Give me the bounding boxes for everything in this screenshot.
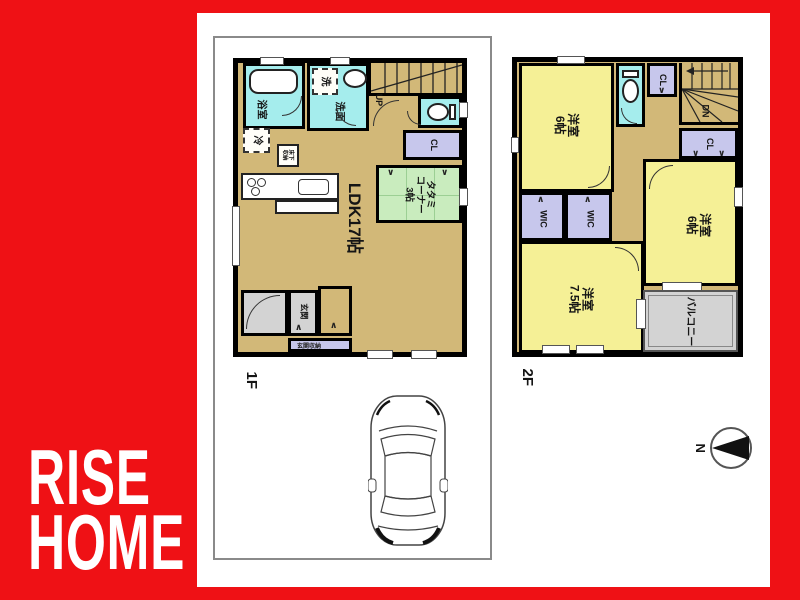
window [542,345,570,354]
underfloor-storage: 床下 収納 [277,144,299,167]
stairs-icon [371,63,462,93]
kitchen-counter [241,173,339,200]
floor-plan-2f: 洋室 6帖 CL ∨ [512,57,743,357]
toilet-icon [427,103,449,121]
washbasin-icon [343,69,367,88]
wic-west: ∧ WIC [519,192,565,241]
folding-door-mark: ∨ [387,168,394,177]
window [636,299,646,329]
flyer-panel: 浴室 洗 洗面 UP [197,13,770,587]
window [557,56,585,64]
folding-door-mark: ∨ [658,86,665,95]
entrance-closet: ∧ [318,286,352,336]
folding-door-mark: ∧ [584,195,591,204]
bedroom-e-label: 洋室 6帖 [685,213,711,237]
door-arc [282,96,302,116]
door-arc [615,247,639,271]
sink-icon [298,179,329,195]
closet-2f-north: CL ∨ [647,63,677,97]
room-washroom: 洗 洗面 [307,63,369,131]
door-arc [373,100,399,126]
ldk-label: LDK17帖 [344,183,363,254]
folding-door-mark: ∨ [718,149,725,158]
stove-burner-icon [257,178,266,187]
underfloor-label: 床下 収納 [282,150,294,161]
closet-label: CL [704,138,714,150]
window [511,137,519,153]
room-toilet-2f [616,63,645,127]
flyer: { "brand": { "line1": "RISE", "line2": "… [0,0,800,600]
toilet-tank-icon [622,70,639,78]
wic-east: ∧ WIC [565,192,612,241]
window [260,57,284,65]
stove-burner-icon [247,178,256,187]
entrance-storage-label: 玄関収納 [297,341,321,350]
door-arc [621,108,637,124]
window [411,350,437,359]
wic-label: WIC [538,210,548,228]
folding-door-mark: ∧ [537,195,544,204]
room-bathroom: 浴室 [243,63,305,129]
closet-label: CL [428,139,438,151]
entrance-storage: 玄関収納 [288,338,352,352]
compass: N [693,423,755,473]
floor2-label: 2F [519,368,536,386]
toilet-tank-icon [449,104,456,120]
door-arc [336,106,356,126]
window [459,188,468,206]
window [459,102,468,118]
tatami-label: タタミ コーナー 3帖 [403,176,434,214]
kitchen-counter-return [275,200,339,214]
room-bedroom-sw: 洋室 7.5帖 [519,241,644,353]
stairs-2f [679,63,738,125]
stairs-icon [682,63,738,122]
stove-burner-icon [251,187,260,196]
window [232,206,240,266]
window [330,57,350,65]
balcony-inner-line [648,295,733,347]
closet-1f: CL [403,130,462,160]
compass-icon [693,423,755,473]
fridge-label: 冷 [251,136,262,146]
room-tatami-corner: ∨ ∨ タタミ コーナー 3帖 [376,165,462,223]
bedroom-nw-label: 洋室 6帖 [553,113,579,137]
washing-machine-icon: 洗 [312,68,338,95]
wic-label: WIC [585,210,595,228]
laundry-label: 洗 [320,77,331,87]
door-arc [588,166,610,188]
toilet-icon [622,79,639,103]
door-arc [407,111,421,125]
bedroom-sw-label: 洋室 7.5帖 [567,285,593,314]
room-toilet-1f [418,96,462,128]
room-bedroom-e: 洋室 6帖 [643,159,738,286]
bathtub-icon [249,69,298,94]
balcony: バルコニー [643,290,738,352]
floor-plan-1f: 浴室 洗 洗面 UP [233,58,467,357]
folding-door-mark: ∧ [330,321,337,330]
entrance-porch [241,290,288,336]
window [734,187,743,207]
entrance-genkan: 玄関 ∧ [288,290,318,336]
folding-door-mark: ∧ [295,323,302,332]
door-arc [649,165,673,189]
refrigerator-icon: 冷 [243,128,270,153]
room-bedroom-nw: 洋室 6帖 [519,63,614,192]
entrance-label: 玄関 [299,303,308,319]
bathroom-label: 浴室 [256,99,267,119]
brand-line-2: HOME [28,503,185,581]
stairs-1f [368,63,462,96]
closet-2f-east: CL ∨ ∨ [679,128,738,159]
window [662,282,702,291]
folding-door-mark: ∨ [441,168,448,177]
car-icon [368,393,448,548]
window [576,345,604,354]
window [367,350,393,359]
folding-door-mark: ∨ [692,149,699,158]
door-arc [246,295,280,329]
